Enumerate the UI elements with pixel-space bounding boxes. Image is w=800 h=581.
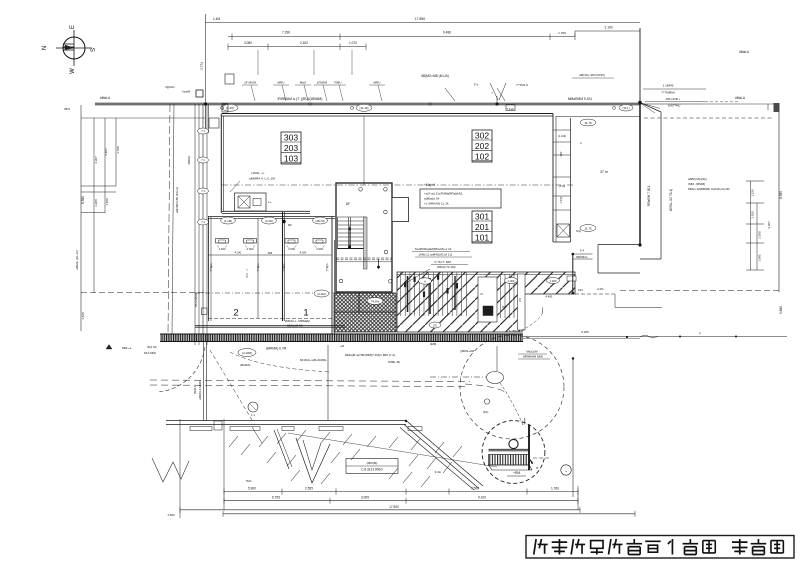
svg-text:aMM)L (DL-12): aMM)L (DL-12) (75, 250, 79, 270)
svg-text:B(4 M): B(4 M) (148, 345, 157, 349)
svg-text:1.4M: 1.4M (213, 17, 220, 21)
svg-text:iRiRMAM a.):T ()RUU)5BMM): iRiRMAM a.):T ()RUU)5BMM) (278, 97, 323, 101)
svg-text:301: 301 (475, 212, 490, 222)
svg-text:202: 202 (475, 141, 490, 151)
svg-text:1.400: 1.400 (105, 198, 109, 206)
svg-text:#MaLA: #MaLA (739, 50, 750, 54)
svg-text:3.407: 3.407 (104, 148, 108, 156)
svg-text:C.8.3x13.000m: C.8.3x13.000m (361, 468, 383, 472)
svg-text:7.1: 7.1 (201, 189, 205, 193)
svg-text:(MM. (MMM): (MM. (MMM) (688, 182, 705, 186)
svg-text:M+RRMa)aM)RM+M)+1 1k: M+RRMa)aM)RM+M)+1 1k (415, 247, 452, 251)
svg-text:4 S00: 4 S00 (247, 247, 254, 251)
svg-text:S: S (91, 48, 97, 52)
svg-text:9.480: 9.480 (443, 31, 451, 35)
svg-text:S(1): S(1) (576, 229, 581, 233)
svg-text:i: i (247, 268, 248, 272)
svg-text:1.760: 1.760 (551, 487, 559, 491)
svg-text:+: + (565, 470, 567, 474)
svg-text:(V): (V) (433, 324, 437, 328)
svg-text:MMaRMM 9.331: MMaRMM 9.331 (568, 97, 593, 101)
svg-text:MRU: MRU (373, 81, 380, 85)
svg-text:#MaLA: #MaLA (735, 96, 746, 100)
svg-text:8.385: 8.385 (779, 191, 783, 199)
svg-text:(11.10): (11.10) (360, 106, 369, 110)
svg-text:S13: S13 (578, 288, 583, 292)
svg-text:muaM: muaM (182, 90, 191, 94)
svg-text:/M1).#1B +: /M1).#1B + (666, 97, 681, 101)
svg-text:3.080: 3.080 (244, 41, 252, 45)
svg-text:7: 7 (491, 91, 493, 95)
svg-text:(M411: (M411 (193, 386, 197, 394)
svg-text:7*4I=-: 7*4I=- (210, 263, 214, 272)
svg-text:,-'t40': ,-'t40' (559, 151, 563, 159)
svg-text:5 4: 5 4 (580, 249, 585, 253)
svg-text:,)AM).1L taM4)LM1,M 1)1: ,)AM).1L taM4)LM1,M 1)1 (418, 253, 453, 257)
svg-text:37 m: 37 m (600, 170, 608, 174)
svg-text:aM(30)~360 (M.50): aM(30)~360 (M.50) (579, 73, 605, 77)
svg-text:7.1: 7.1 (201, 158, 205, 162)
svg-text:7.110: 7.110 (506, 107, 514, 111)
svg-text:#MaLA: #MaLA (100, 96, 111, 100)
svg-text:(MMRA): (MMRA) (240, 363, 250, 367)
svg-text:(11.1): (11.1) (622, 106, 629, 110)
svg-text:kERU--02 76.1): kERU--02 76.1) (669, 189, 673, 211)
svg-text:P: P (699, 332, 701, 336)
svg-text:2'4: 2'4 (518, 298, 522, 302)
svg-text:MRM#4.L: MRM#4.L (576, 255, 588, 259)
svg-text:RMU: RMU (334, 81, 341, 85)
svg-text:A: A (424, 280, 426, 284)
svg-text:MRL+L: MRL+L (122, 346, 132, 350)
svg-text:7*'7MMM): 7*'7MMM) (661, 91, 675, 95)
svg-text:(2.4S): (2.4S) (265, 219, 273, 223)
svg-text:4.1%: 4.1% (597, 287, 604, 291)
svg-text:MMa)M a)7001MM)T-1M)1 MM (7: MMa)M a)7001MM)T-1M)1 MM (7.2) (345, 353, 395, 357)
svg-text:7*>: 7*> (474, 83, 479, 87)
svg-text:MRU: MRU (277, 81, 284, 85)
svg-text:aMM)L4 M)M1: aMM)L4 M)M1 (198, 380, 202, 400)
svg-text:74.6%: 74.6% (371, 300, 380, 304)
svg-text:1F MUM: 1F MUM (244, 81, 256, 85)
svg-text:905: 905 (268, 251, 273, 255)
svg-text:7*'7M1.9: 7*'7M1.9 (516, 83, 528, 87)
svg-text:7*4I=-: 7*4I=- (282, 263, 286, 272)
svg-text:Ma)Lt)M: Ma)Lt)M (526, 350, 538, 354)
svg-text:E: E (70, 25, 76, 29)
svg-text:4MM: 4MM (430, 342, 437, 346)
svg-text:20h: 20h (502, 305, 507, 309)
svg-text:1.520: 1.520 (81, 312, 85, 320)
svg-text:N: N (42, 46, 48, 50)
svg-text:aMM) M)4(1k): aMM) M)4(1k) (688, 177, 707, 181)
svg-text:1.220: 1.220 (751, 189, 755, 197)
svg-text:)(MM1+2M: )(MM1+2M (460, 349, 475, 353)
svg-text:1.100: 1.100 (751, 211, 755, 219)
svg-text:MRMM)M MM): MRMM)M MM) (523, 355, 543, 359)
svg-text:5.900: 5.900 (248, 487, 256, 491)
svg-text:+). tMM+M) 1):.1k: +). tMM+M) 1):.1k (424, 202, 449, 206)
svg-text:(4.10M): (4.10M) (242, 351, 252, 355)
svg-text:DF: DF (346, 202, 350, 206)
svg-text:7.290: 7.290 (282, 31, 290, 35)
svg-text:aMRMA) 6.7M: aMRMA) 6.7M (266, 347, 287, 351)
svg-text:4 S00: 4 S00 (316, 247, 323, 251)
svg-text:1.000: 1.000 (508, 279, 515, 283)
svg-text:8.380: 8.380 (81, 196, 85, 204)
svg-text:+a)7:at) 11a7MMaRRa)tM)1: +a)7:at) 11a7MMaRRa)tM)1 (424, 192, 463, 196)
svg-text:2.555: 2.555 (305, 487, 313, 491)
svg-text:9.680: 9.680 (779, 306, 783, 314)
svg-text:11.75: 11.75 (584, 121, 592, 125)
svg-text:M)1M1L a)M+M1M)L: M)1M1L a)M+M1M)L (300, 358, 327, 362)
svg-text:1.1: 1.1 (251, 413, 255, 417)
svg-text:4.307: 4.307 (767, 221, 771, 229)
svg-text:17.890: 17.890 (415, 17, 425, 21)
svg-text:/#1)-: /#1)- (483, 410, 489, 414)
svg-text:W: W (70, 68, 76, 74)
svg-text:1.985: 1.985 (758, 254, 762, 262)
svg-text:203: 203 (284, 143, 299, 153)
svg-text:(4M M): (4M M) (315, 219, 324, 223)
svg-text:4.491: 4.491 (545, 295, 553, 299)
svg-text:7*4I=-: 7*4I=- (257, 263, 261, 272)
svg-text:7.1: 7.1 (201, 220, 205, 224)
svg-text:17.500: 17.500 (389, 505, 399, 509)
svg-text:iRMA)t,L. MRMaM: iRMA)t,L. MRMaM (285, 319, 310, 323)
svg-text:Y.774: Y.774 (200, 62, 204, 70)
svg-text:MMs)-1)MMMM) 9+R(3mm)1M: MMs)-1)MMMM) 9+R(3mm)1M (688, 187, 730, 191)
svg-text:(1.14): (1.14) (559, 185, 566, 188)
svg-text:6.185: 6.185 (581, 330, 589, 334)
svg-text:(MM(M): (MM(M) (367, 461, 378, 465)
svg-text:2.500: 2.500 (758, 231, 762, 239)
svg-text:4.307: 4.307 (94, 156, 98, 164)
svg-text:2: 2 (233, 308, 238, 319)
svg-text:1.760: 1.760 (558, 31, 566, 35)
svg-text:1.000: 1.000 (550, 279, 557, 283)
svg-text:(1.140): (1.140) (558, 135, 566, 138)
svg-text:MaU: MaU (300, 81, 307, 85)
svg-text:ir@iit/m: ir@iit/m (165, 85, 175, 89)
svg-text:2M(A)7:0-1M): 2M(A)7:0-1M) (437, 265, 456, 269)
svg-text:7.500: 7.500 (471, 487, 479, 491)
svg-text:M(1.MM): M(1.MM) (144, 351, 156, 355)
svg-text:MM)L)M M): MM)L)M M) (287, 324, 303, 328)
svg-text:+RM.: +RM. (513, 471, 521, 475)
svg-text:itB(MO=MB (M.UA): itB(MO=MB (M.UA) (421, 74, 449, 78)
svg-text:(2.2M): (2.2M) (317, 292, 325, 296)
svg-text:38%: 38% (64, 107, 70, 111)
svg-text:6.18%: 6.18% (509, 329, 518, 333)
svg-text:7/,71L?- MM: 7/,71L?- MM (434, 260, 451, 264)
svg-text:4.5/0: 4.5/0 (300, 251, 307, 255)
svg-text:4.5/0: 4.5/0 (235, 251, 242, 255)
svg-text:6.755: 6.755 (272, 496, 280, 500)
svg-text:2.320: 2.320 (300, 41, 308, 45)
svg-text:303: 303 (284, 133, 299, 143)
svg-text:L+-: L+- (268, 200, 272, 204)
svg-text:-1.100: -1.100 (603, 26, 612, 30)
svg-text:7.1: 7.1 (201, 129, 205, 133)
svg-text:1.700: 1.700 (116, 146, 120, 154)
svg-text:(1M1L,-n-: (1M1L,-n- (251, 171, 264, 175)
svg-text:1M)7?#1/: 1M)7?#1/ (668, 104, 681, 108)
svg-text:u: u (580, 141, 582, 145)
svg-text:1.200: 1.200 (94, 199, 98, 207)
svg-text:7M=.: 7M=. (246, 479, 253, 483)
svg-text:a)M)a)a :M: a)M)a)a :M (424, 197, 440, 201)
svg-text:3.005: 3.005 (361, 496, 369, 500)
svg-text:4 S00: 4 S00 (219, 247, 226, 251)
svg-text:1FM5/5: 1FM5/5 (317, 81, 328, 85)
svg-text:+Ma)+4: +Ma)+4 (424, 183, 435, 187)
svg-text:9.4L/: 9.4L/ (435, 470, 442, 474)
svg-text:4 S00: 4 S00 (288, 247, 295, 251)
svg-text:+M: +M (340, 344, 345, 348)
svg-text:(L.15): (L.15) (226, 106, 234, 110)
svg-text:aM300X150 (M.LA): aM300X150 (M.LA) (175, 187, 179, 213)
svg-text:101: 101 (475, 232, 490, 242)
svg-text:201: 201 (475, 222, 490, 232)
svg-text:1: 1 (303, 308, 308, 319)
svg-text:11.75: 11.75 (584, 227, 592, 231)
svg-text:1.070: 1.070 (349, 41, 357, 45)
svg-text:1 1MFB: 1 1MFB (663, 84, 674, 88)
svg-text:7M-/2%M1L: 7M-/2%M1L (194, 292, 198, 308)
svg-text:f3: f3 (536, 466, 539, 470)
svg-text:7*4I=-: 7*4I=- (326, 263, 330, 272)
svg-text:M#: M# (288, 223, 292, 227)
svg-text:1.500: 1.500 (167, 513, 175, 517)
svg-text:103: 103 (284, 153, 299, 163)
svg-text:1MML-M): 1MML-M) (388, 360, 400, 364)
svg-text:302: 302 (475, 131, 490, 141)
svg-text:(1.1M): (1.1M) (224, 219, 232, 223)
svg-text:9.100: 9.100 (478, 496, 486, 500)
svg-text:M: M (481, 292, 483, 296)
svg-text:102: 102 (475, 151, 490, 161)
svg-text:aMMRA 4. L+1.1M: aMMRA 4. L+1.1M (249, 177, 275, 181)
svg-text:c'1#]': c'1#]' (559, 196, 563, 203)
svg-text:RRaRM 7.501: RRaRM 7.501 (647, 186, 651, 206)
svg-text:M#M)L: M#M)L (187, 155, 191, 164)
